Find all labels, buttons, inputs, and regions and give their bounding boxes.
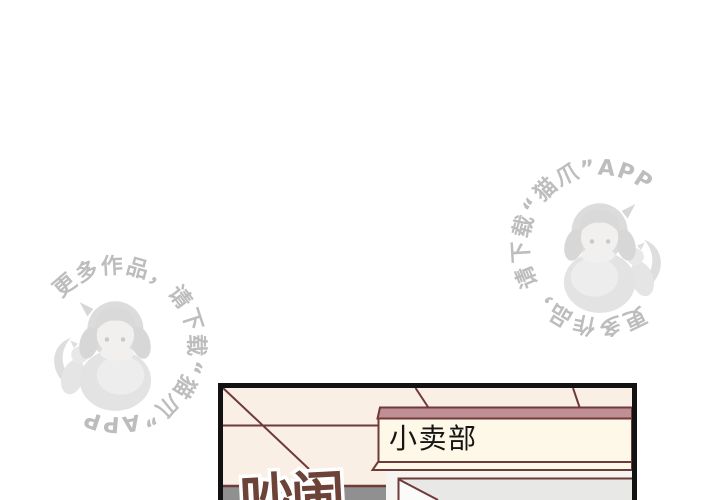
- watermark-left: 更多作品，请下载“猫爪”APP: [0, 215, 247, 471]
- shop-sign-label: 小卖部: [389, 422, 478, 455]
- sign-bottom-edge: [373, 462, 633, 470]
- watermark-right: 更多作品，请下载“猫爪”APP: [472, 121, 720, 375]
- comic-panel: 小卖部 吵闹: [218, 383, 637, 500]
- comic-page-canvas: 更多作品，请下载“猫爪”APP 更多作品，请下载“猫爪”APP: [0, 0, 720, 500]
- sign-top-strip: [378, 408, 633, 419]
- sfx-text: 吵闹: [239, 464, 344, 500]
- comic-page: 更多作品，请下载“猫爪”APP 更多作品，请下载“猫爪”APP: [0, 0, 720, 500]
